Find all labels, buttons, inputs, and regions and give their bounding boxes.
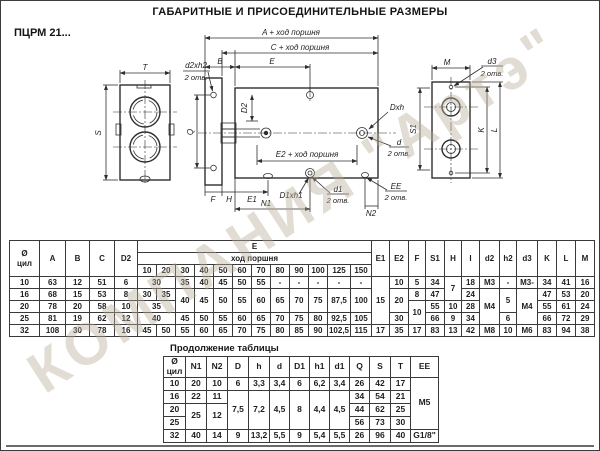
table-cell: 32 [164, 429, 186, 442]
table-cell: 3,3 [249, 377, 270, 390]
table-cell: - [351, 277, 372, 289]
dim-label-m: M [444, 58, 451, 67]
table-cell: 25 [186, 403, 207, 429]
table-cell: 65 [271, 289, 290, 313]
table-cell: 3,4 [270, 377, 290, 390]
table-cell: 87,5 [328, 289, 351, 313]
table-cell: - [500, 277, 517, 289]
table-cell: C [90, 241, 115, 277]
table-cell: 10 [409, 301, 426, 325]
table-cell: 66 [538, 313, 557, 325]
dim-label-s: S [94, 130, 103, 136]
table-cell: 105 [351, 313, 372, 325]
page-title: ГАБАРИТНЫЕ И ПРИСОЕДИНИТЕЛЬНЫЕ РАЗМЕРЫ [0, 6, 600, 18]
table-cell: 61 [557, 301, 576, 313]
table-cell: 30 [138, 277, 176, 289]
table-cell: 50 [157, 325, 176, 337]
table-cell: 102,5 [328, 325, 351, 337]
table-cell: 125 [328, 265, 351, 277]
table-cell: d [270, 357, 290, 378]
dim-label-h: H [226, 195, 232, 204]
table-cell: 12 [207, 403, 228, 429]
table-cell: 34 [462, 313, 480, 325]
dim-label-dxh: Dxh [390, 103, 405, 112]
dim-label-e2-stroke: E2 + ход поршня [276, 150, 339, 159]
table-cell: 45 [138, 325, 157, 337]
table-cell: 30 [66, 325, 90, 337]
table-cell: 28 [462, 301, 480, 313]
table-cell: - [290, 277, 309, 289]
dimensions-table-main: Ø цилABCD2EE1E2FS1HId2h2d3KLMход поршня1… [9, 240, 595, 337]
table-cell: 13 [445, 325, 462, 337]
table-cell: 50 [214, 289, 233, 313]
table-cell: ход поршня [138, 253, 372, 265]
table-cell: 26 [350, 429, 370, 442]
table-cell: 40 [391, 429, 411, 442]
table-cell: Q [350, 357, 370, 378]
dim-label-d2xh2: d2xh2 [185, 61, 207, 70]
dim-label-ee-holes: 2 отв. [384, 193, 408, 202]
table-cell: 34 [350, 390, 370, 403]
table-cell: 108 [40, 325, 66, 337]
dim-label-n2: N2 [366, 209, 377, 218]
table-cell: 55 [176, 325, 195, 337]
table-cell: 115 [351, 325, 372, 337]
table-cell: 10 [115, 301, 138, 313]
table-cell: 85 [290, 325, 309, 337]
table-cell: E [138, 241, 372, 253]
dim-label-b: B [217, 57, 223, 66]
table-cell: 17 [372, 325, 390, 337]
dim-label-q: Q [186, 129, 195, 135]
table-cell: 9 [290, 429, 310, 442]
table-cell: 11 [207, 390, 228, 403]
table-cell: N1 [186, 357, 207, 378]
table-cell: K [538, 241, 557, 277]
table-cell: 40 [176, 289, 195, 313]
dim-label-c-stroke: C + ход поршня [271, 43, 330, 52]
footer-rule [6, 445, 594, 447]
table-cell: 34 [426, 277, 445, 289]
dim-label-d: d [397, 138, 402, 147]
table-cell: 25 [10, 313, 40, 325]
table-cell: 150 [351, 265, 372, 277]
table-cell: 45 [214, 277, 233, 289]
table-cell: 45 [195, 289, 214, 313]
table-cell: 80 [309, 313, 328, 325]
table-cell: M5 [411, 377, 439, 429]
table-cell: 55 [233, 289, 252, 313]
dim-label-d1xh1: D1xh1 [279, 191, 302, 200]
table-cell: 24 [462, 289, 480, 301]
table-cell: 50 [233, 277, 252, 289]
table-cell: h [249, 357, 270, 378]
table-cell: 6 [228, 377, 249, 390]
table-cell: 29 [576, 313, 595, 325]
table-cell: 50 [214, 265, 233, 277]
table-cell: 80 [271, 325, 290, 337]
table-cell: S [370, 357, 391, 378]
table-cell: 47 [538, 289, 557, 301]
dim-label-d3: d3 [488, 57, 497, 66]
dim-label-e1: E1 [247, 195, 257, 204]
table-cell: M6 [517, 325, 538, 337]
table-cell: 66 [426, 313, 445, 325]
table-cell: 62 [90, 313, 115, 325]
table-cell: M8 [480, 325, 500, 337]
table-cell: 10 [390, 277, 409, 289]
dim-label-s1: S1 [409, 124, 418, 134]
dim-label-d1-holes: 2 отв. [326, 196, 350, 205]
dim-label-ee: EE [391, 182, 402, 191]
table-cell: 40 [138, 313, 176, 325]
table-cell: 65 [252, 313, 271, 325]
table-cell: 20 [576, 289, 595, 301]
dim-label-e: E [269, 57, 275, 66]
table-cell: 14 [207, 429, 228, 442]
table-cell: 78 [40, 301, 66, 313]
dim-label-d2: D2 [240, 102, 249, 113]
table-cell: 80 [271, 265, 290, 277]
table-cell: 7,2 [249, 390, 270, 429]
table-cell: 34 [538, 277, 557, 289]
table-cell: d2 [480, 241, 500, 277]
table-cell: 78 [90, 325, 115, 337]
dim-label-k: K [477, 127, 486, 133]
table-cell: - [328, 277, 351, 289]
table-cell: 10 [10, 277, 40, 289]
table-cell: 72 [557, 313, 576, 325]
cylinder-body-view [198, 35, 409, 212]
dim-label-d1: d1 [334, 185, 343, 194]
table-cell: 6 [290, 377, 310, 390]
table-cell: 5 [500, 289, 517, 313]
table-cell: 12 [115, 313, 138, 325]
table-cell: 58 [90, 301, 115, 313]
table-cell: 41 [557, 277, 576, 289]
table-cell: E1 [372, 241, 390, 277]
table-cell: 3,4 [330, 377, 350, 390]
table-cell: 83 [426, 325, 445, 337]
table-cell: 16 [10, 289, 40, 301]
table-cell: G1/8" [411, 429, 439, 442]
technical-drawing: A + ход поршня C + ход поршня B E T S Q … [0, 20, 600, 238]
table-cell: 30 [391, 416, 411, 429]
table-cell: 56 [350, 416, 370, 429]
table-cell: EE [411, 357, 439, 378]
table-cell: 18 [462, 277, 480, 289]
table-cell: 75 [309, 289, 328, 313]
table-cell: 10 [207, 377, 228, 390]
table-cell: 4,5 [330, 390, 350, 429]
table-cell: 10 [500, 325, 517, 337]
table-cell: 20 [186, 377, 207, 390]
table-cell: 35 [138, 301, 176, 313]
table-cell: 38 [576, 325, 595, 337]
table-cell: 42 [462, 325, 480, 337]
table-cell: 100 [351, 289, 372, 313]
table-cell: 51 [90, 277, 115, 289]
table-cell: - [309, 277, 328, 289]
table-cell: 16 [164, 390, 186, 403]
table-cell: 50 [195, 313, 214, 325]
dim-label-d3-holes: 2 отв. [480, 69, 504, 78]
table-cell: 96 [370, 429, 391, 442]
table-cell: 5 [409, 277, 426, 289]
table-cell: 10 [445, 301, 462, 313]
table-cell: 20 [10, 301, 40, 313]
table-cell: 9 [445, 313, 462, 325]
table-cell: h1 [310, 357, 330, 378]
table-cell: - [271, 277, 290, 289]
table-cell: 6 [115, 277, 138, 289]
dim-label-n1: N1 [261, 199, 271, 208]
table-cell: 60 [252, 289, 271, 313]
table-cell: 19 [66, 313, 90, 325]
table-cell: 15 [66, 289, 90, 301]
dimensions-table-continuation: Ø цилN1N2DhdD1h1d1QSTEE10201063,33,466,2… [163, 356, 439, 443]
table-cell: 20 [164, 403, 186, 416]
table-cell: 60 [195, 325, 214, 337]
table-cell: 73 [370, 416, 391, 429]
table-cell: 81 [40, 313, 66, 325]
table-cell: H [445, 241, 462, 277]
table-cell: 30 [138, 289, 157, 301]
dim-label-l: L [490, 128, 499, 132]
table-cell: 92,5 [328, 313, 351, 325]
table-cell: 60 [233, 313, 252, 325]
table-cell: 47 [426, 289, 445, 301]
table-cell: 22 [186, 390, 207, 403]
dim-label-d2xh2-holes: 2 отв. [184, 73, 208, 82]
table-cell: 7 [445, 277, 462, 301]
table-cell: D [228, 357, 249, 378]
table-cell: 70 [290, 289, 309, 313]
table-cell: L [557, 241, 576, 277]
table-cell: 15 [372, 277, 390, 325]
table-cell: Ø цил [10, 241, 40, 277]
table-cell: 90 [309, 325, 328, 337]
table-cell: d1 [330, 357, 350, 378]
table-cell: 10 [164, 377, 186, 390]
table-cell: 53 [557, 289, 576, 301]
table-cell: 35 [176, 277, 195, 289]
left-end-view [103, 70, 177, 185]
table-cell: 55 [538, 301, 557, 313]
table-cell: M4 [517, 289, 538, 325]
table-cell: 70 [252, 265, 271, 277]
table-cell: 54 [370, 390, 391, 403]
table-cell: 40 [186, 429, 207, 442]
table-cell: 55 [426, 301, 445, 313]
table-cell: 16 [576, 277, 595, 289]
flange-plate [183, 71, 222, 185]
table-cell: 21 [391, 390, 411, 403]
table-cell: 20 [390, 289, 409, 313]
table-cell: 10 [138, 265, 157, 277]
table-cell: 12 [66, 277, 90, 289]
table-cell: 65 [214, 325, 233, 337]
dim-label-a-stroke: A + ход поршня [261, 28, 321, 37]
table-cell: 62 [370, 403, 391, 416]
table-cell: 7,5 [228, 390, 249, 429]
table-cell: 63 [40, 277, 66, 289]
table-cell: 4,4 [310, 390, 330, 429]
table-continuation-label: Продолжение таблицы [170, 343, 279, 354]
table-cell: 70 [271, 313, 290, 325]
table-cell: 32 [10, 325, 40, 337]
table-cell: 94 [557, 325, 576, 337]
dim-label-d-holes: 2 отв. [387, 149, 411, 158]
table-cell: 100 [309, 265, 328, 277]
table-cell: 25 [391, 403, 411, 416]
table-cell: M4 [480, 289, 500, 325]
table-cell: 25 [164, 416, 186, 429]
table-cell: S1 [426, 241, 445, 277]
table-cell: N2 [207, 357, 228, 378]
right-end-view [417, 65, 503, 183]
table-cell: 42 [370, 377, 391, 390]
table-cell: B [66, 241, 90, 277]
table-cell: 6,2 [310, 377, 330, 390]
table-cell: 6 [500, 313, 517, 325]
table-cell: Ø цил [164, 357, 186, 378]
table-cell: F [409, 241, 426, 277]
table-cell: I [462, 241, 480, 277]
table-cell: 8 [409, 289, 426, 301]
table-cell: M3- [517, 277, 538, 289]
table-cell: T [391, 357, 411, 378]
table-cell: 30 [176, 265, 195, 277]
table-cell: D2 [115, 241, 138, 277]
table-cell: M [576, 241, 595, 277]
table-cell: 75 [290, 313, 309, 325]
table-cell: d3 [517, 241, 538, 277]
dim-label-t: T [143, 63, 149, 72]
table-cell: 44 [350, 403, 370, 416]
table-cell: 68 [40, 289, 66, 301]
table-cell: 24 [576, 301, 595, 313]
table-cell: 40 [195, 265, 214, 277]
table-cell: E2 [390, 241, 409, 277]
table-cell: M3 [480, 277, 500, 289]
table-cell: D1 [290, 357, 310, 378]
table-cell: 40 [195, 277, 214, 289]
table-cell: 70 [233, 325, 252, 337]
model-number: ПЦРМ 21... [14, 27, 71, 39]
table-cell: 8 [290, 390, 310, 429]
table-cell: 5,4 [310, 429, 330, 442]
table-cell: 8 [115, 289, 138, 301]
table-cell: 45 [176, 313, 195, 325]
table-cell: 20 [157, 265, 176, 277]
table-cell: 5,5 [330, 429, 350, 442]
table-cell: 4,5 [270, 390, 290, 429]
table-cell: 13,2 [249, 429, 270, 442]
table-cell: 53 [90, 289, 115, 301]
table-cell: 26 [350, 377, 370, 390]
table-cell: 9 [228, 429, 249, 442]
table-cell: 35 [390, 325, 409, 337]
table-cell: 55 [252, 277, 271, 289]
table-cell: 35 [157, 289, 176, 301]
table-cell: 75 [252, 325, 271, 337]
table-cell: 60 [233, 265, 252, 277]
table-cell: 16 [115, 325, 138, 337]
table-cell: 83 [538, 325, 557, 337]
table-cell: A [40, 241, 66, 277]
table-cell: h2 [500, 241, 517, 277]
table-cell: 5,5 [270, 429, 290, 442]
table-cell: 90 [290, 265, 309, 277]
table-cell: 17 [391, 377, 411, 390]
table-cell: 55 [214, 313, 233, 325]
table-cell: 20 [66, 301, 90, 313]
table-cell: 30 [390, 313, 409, 325]
table-cell: 17 [409, 325, 426, 337]
dim-label-f: F [211, 195, 217, 204]
